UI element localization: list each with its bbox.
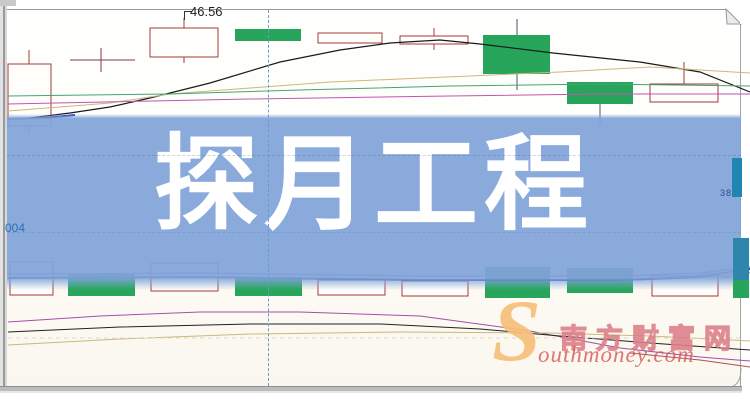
page-fold-corner-icon xyxy=(0,0,750,400)
stock-chart-promo-image: 探月工程 46.56 004 38 S 南方财富网 outhmoney.com xyxy=(0,0,750,400)
